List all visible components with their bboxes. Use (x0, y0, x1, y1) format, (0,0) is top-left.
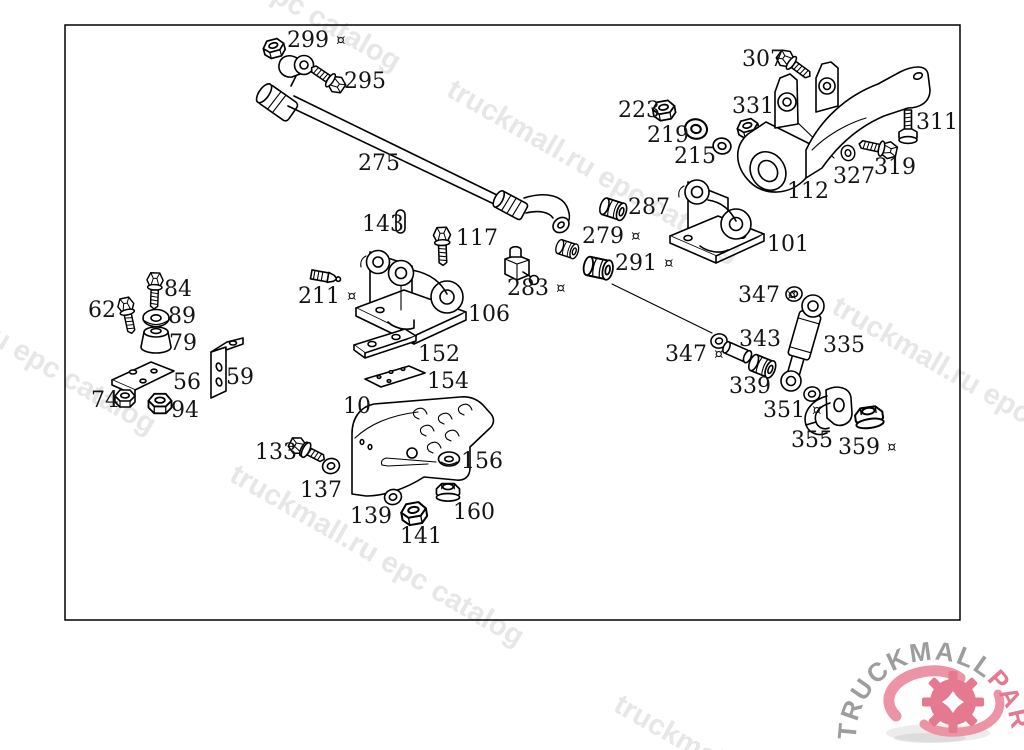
watermark-text: truckmall.ru epc catalog (102, 0, 407, 78)
part-79-bushing-mount (141, 327, 171, 353)
part-label-327[interactable]: 327 (833, 164, 875, 189)
part-label-355[interactable]: 355 (791, 428, 833, 453)
part-label-89[interactable]: 89 (168, 304, 196, 329)
part-84-bolt (146, 273, 163, 310)
part-label-160[interactable]: 160 (453, 500, 495, 525)
part-label-79[interactable]: 79 (169, 331, 197, 356)
part-311-bolt (899, 110, 917, 143)
part-label-279[interactable]: 279¤ (582, 224, 641, 249)
part-label-139[interactable]: 139 (350, 504, 392, 529)
parts-diagram-page: truckmall.ru epc catalogtruckmall.ru epc… (0, 0, 1024, 750)
part-62-bolt (116, 296, 139, 335)
part-label-311[interactable]: 311 (916, 110, 958, 135)
part-label-156[interactable]: 156 (461, 449, 503, 474)
part-label-211[interactable]: 211¤ (298, 284, 357, 309)
watermark-text: truckmall.ru epc catalog (0, 246, 161, 441)
part-label-56[interactable]: 56 (173, 370, 201, 395)
part-label-154[interactable]: 154 (427, 369, 469, 394)
part-label-133[interactable]: 133 (255, 440, 297, 465)
part-117-bolt (433, 227, 451, 266)
part-156-washer (439, 452, 460, 466)
part-160-nut (436, 484, 459, 501)
part-label-275[interactable]: 275 (358, 151, 400, 176)
part-152-plate (354, 329, 416, 358)
part-label-319[interactable]: 319 (874, 155, 916, 180)
part-label-10[interactable]: 10 (343, 394, 371, 419)
part-106-bracket (356, 251, 466, 345)
part-327-washer (840, 144, 856, 162)
part-label-347a[interactable]: 347¤ (738, 283, 797, 308)
part-label-307[interactable]: 307 (742, 47, 784, 72)
part-label-299[interactable]: 299¤ (287, 28, 346, 53)
part-label-359[interactable]: 359¤ (838, 435, 897, 460)
part-154-plate (365, 366, 425, 387)
part-label-74[interactable]: 74 (91, 388, 119, 413)
part-label-283[interactable]: 283¤ (507, 276, 566, 301)
part-279-bushing (554, 238, 580, 260)
part-label-106[interactable]: 106 (468, 302, 510, 327)
part-label-335[interactable]: 335 (823, 333, 865, 358)
part-291-bushing (582, 255, 615, 280)
part-94-nut (149, 394, 172, 414)
part-label-152[interactable]: 152 (418, 342, 460, 367)
part-label-94[interactable]: 94 (171, 398, 199, 423)
part-label-223[interactable]: 223 (618, 98, 660, 123)
part-label-101[interactable]: 101 (767, 232, 809, 257)
part-335-shock-absorber (781, 295, 824, 391)
part-89-washer (143, 310, 169, 327)
part-label-112[interactable]: 112 (787, 179, 829, 204)
part-label-84[interactable]: 84 (164, 277, 192, 302)
part-label-347b[interactable]: 347¤ (665, 342, 724, 367)
part-label-339[interactable]: 339 (729, 374, 771, 399)
part-label-62[interactable]: 62 (88, 298, 116, 323)
part-label-143[interactable]: 143 (362, 212, 404, 237)
part-label-331[interactable]: 331 (732, 94, 774, 119)
part-211-grease-fitting (310, 269, 341, 284)
part-label-351[interactable]: 351¤ (763, 398, 822, 423)
part-label-291[interactable]: 291¤ (615, 251, 674, 276)
part-10-bracket (352, 397, 493, 496)
part-label-117[interactable]: 117 (456, 226, 498, 251)
part-label-59[interactable]: 59 (226, 365, 254, 390)
part-label-215[interactable]: 215 (674, 144, 716, 169)
part-label-141[interactable]: 141 (400, 524, 442, 549)
part-label-343[interactable]: 343 (739, 327, 781, 352)
part-label-295[interactable]: 295 (344, 69, 386, 94)
parts-diagram-canvas: truckmall.ru epc catalogtruckmall.ru epc… (0, 0, 1024, 750)
part-label-287[interactable]: 287 (628, 195, 670, 220)
part-141-nut (400, 501, 428, 526)
part-359-nut (854, 405, 884, 429)
part-label-137[interactable]: 137 (300, 478, 342, 503)
